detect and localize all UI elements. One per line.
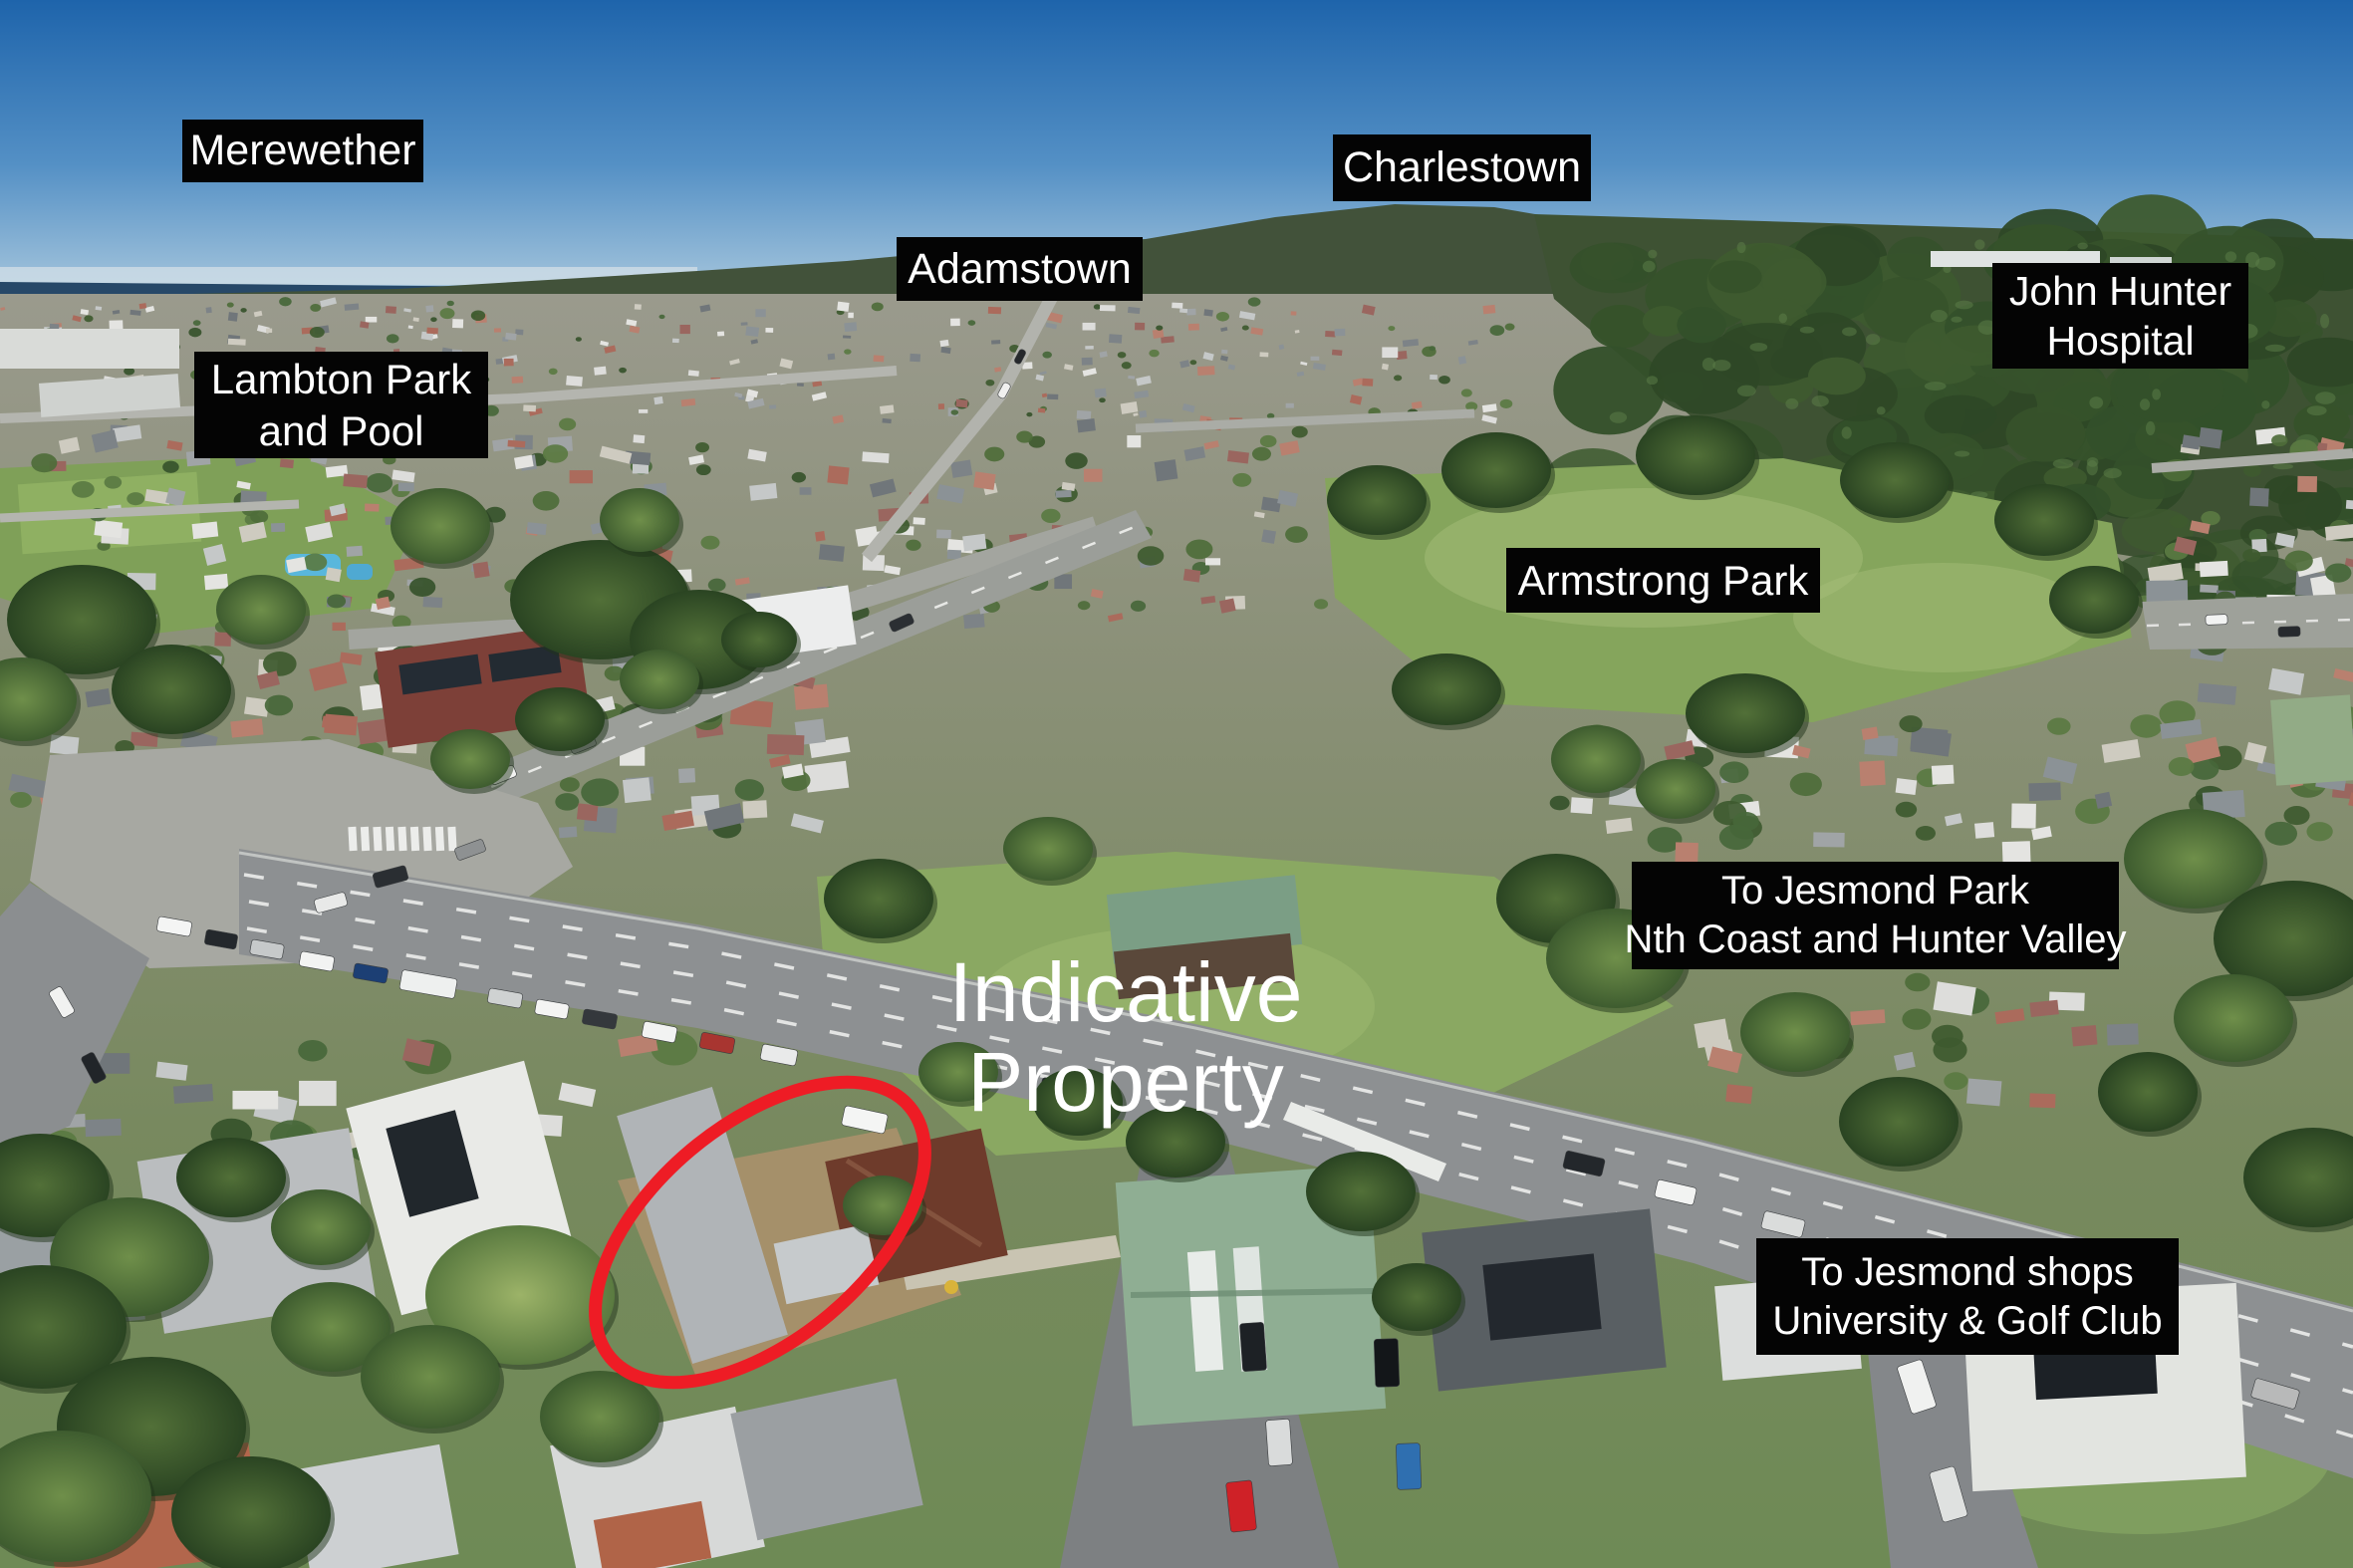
tree xyxy=(533,491,560,511)
roof xyxy=(2249,487,2269,506)
tree xyxy=(1041,509,1060,523)
roof xyxy=(1127,435,1141,447)
tree xyxy=(127,492,144,505)
roof xyxy=(828,354,836,361)
roof xyxy=(425,305,433,312)
tree xyxy=(216,575,306,645)
roof xyxy=(988,307,1001,314)
tree xyxy=(1122,362,1132,369)
roof xyxy=(1221,350,1227,355)
forest-tree xyxy=(1553,346,1665,434)
tree xyxy=(1441,432,1551,508)
roof xyxy=(228,312,238,322)
car xyxy=(1225,1480,1256,1532)
roof xyxy=(192,521,219,539)
canopy-highlight xyxy=(1866,334,1880,345)
roof xyxy=(266,329,272,333)
label-line: and Pool xyxy=(259,405,424,456)
zebra-bar xyxy=(397,827,406,851)
roof xyxy=(874,355,885,362)
tree xyxy=(1094,304,1101,309)
canopy-highlight xyxy=(2225,251,2237,262)
tree xyxy=(581,778,619,806)
roof xyxy=(913,517,924,525)
roof xyxy=(880,404,895,413)
roof xyxy=(741,322,748,326)
roof xyxy=(1128,307,1141,314)
tree xyxy=(1994,484,2094,556)
roof xyxy=(910,354,920,362)
location-label-adamstown: Adamstown xyxy=(897,237,1143,301)
roof xyxy=(882,418,891,423)
roof xyxy=(2182,434,2201,449)
tree xyxy=(1896,802,1917,818)
roof xyxy=(1082,358,1093,366)
tree xyxy=(555,793,579,811)
roof xyxy=(749,483,777,501)
roof xyxy=(345,304,360,311)
canopy-highlight xyxy=(1643,261,1656,273)
tree xyxy=(366,473,392,493)
forest-tree xyxy=(1677,307,1725,344)
roof xyxy=(1286,403,1294,408)
roof xyxy=(1850,1009,1885,1025)
tree xyxy=(447,301,454,306)
tree xyxy=(1902,1008,1931,1029)
tree xyxy=(1003,817,1093,881)
roof xyxy=(408,325,413,329)
tree xyxy=(227,303,234,308)
tree xyxy=(1216,312,1229,322)
tree xyxy=(792,472,806,483)
label-line: Charlestown xyxy=(1343,141,1581,193)
tree xyxy=(1149,350,1159,358)
roof xyxy=(326,567,342,582)
tree xyxy=(2098,1052,2198,1132)
roof xyxy=(271,523,285,532)
roof xyxy=(1571,797,1593,814)
tree xyxy=(1551,725,1641,793)
roof xyxy=(452,319,463,328)
roof xyxy=(1291,311,1297,315)
canopy-highlight xyxy=(1877,406,1886,414)
roof xyxy=(755,309,765,317)
roof xyxy=(1260,352,1269,357)
roof xyxy=(280,458,294,468)
canopy-highlight xyxy=(2104,468,2122,478)
roof xyxy=(1077,410,1092,419)
label-line: University & Golf Club xyxy=(1772,1297,2162,1346)
tree xyxy=(2049,566,2139,634)
roof xyxy=(1197,366,1215,376)
canopy-highlight xyxy=(1974,239,1984,249)
roof xyxy=(1458,356,1467,365)
canopy-highlight xyxy=(2140,398,2150,410)
tree xyxy=(162,461,179,473)
roof xyxy=(230,718,263,737)
tree xyxy=(105,476,123,489)
roof xyxy=(139,303,147,309)
roof xyxy=(2095,792,2112,809)
roof xyxy=(688,370,699,377)
roof xyxy=(1186,309,1195,316)
roof xyxy=(1155,459,1178,481)
canopy-highlight xyxy=(2315,392,2335,404)
canopy-highlight xyxy=(2089,396,2103,408)
roof xyxy=(507,440,525,448)
roof xyxy=(800,487,812,495)
label-line: John Hunter xyxy=(2009,266,2231,316)
tree xyxy=(700,536,719,550)
canopy-highlight xyxy=(2053,459,2074,469)
zebra-bar xyxy=(373,827,382,851)
roof xyxy=(973,471,995,489)
zebra-bar xyxy=(361,827,370,851)
canopy-highlight xyxy=(1779,313,1787,323)
tree xyxy=(1500,399,1513,408)
canopy-highlight xyxy=(1785,398,1798,409)
roof xyxy=(1362,379,1373,387)
tree xyxy=(559,418,576,431)
tree xyxy=(1099,397,1106,402)
tree xyxy=(430,317,436,322)
roof xyxy=(654,396,663,404)
tree xyxy=(387,334,399,343)
canopy-highlight xyxy=(1737,242,1746,253)
roof xyxy=(2071,1025,2097,1047)
canopy-highlight xyxy=(2273,463,2293,469)
tree xyxy=(2306,822,2332,841)
tree xyxy=(1306,1152,1416,1231)
tree xyxy=(1839,1077,1959,1167)
canopy-highlight xyxy=(1610,411,1627,422)
tree xyxy=(951,409,959,415)
roof xyxy=(1430,375,1438,380)
roof xyxy=(206,307,212,313)
roof xyxy=(1085,346,1093,350)
canopy-highlight xyxy=(1648,250,1657,259)
roof xyxy=(1896,778,1918,795)
roof xyxy=(742,800,767,818)
forest-tree xyxy=(1581,243,1634,281)
tree xyxy=(985,380,994,387)
tree xyxy=(1285,526,1308,543)
tree xyxy=(735,779,764,800)
roof xyxy=(635,304,642,310)
tree xyxy=(2170,515,2188,528)
roof xyxy=(862,451,889,463)
tree xyxy=(1429,346,1436,351)
roof xyxy=(1084,469,1103,482)
tree xyxy=(1636,759,1715,819)
forest-tree xyxy=(1590,305,1651,349)
roof xyxy=(639,409,648,413)
roof xyxy=(228,339,246,346)
tree xyxy=(619,368,627,374)
roof xyxy=(2198,683,2236,705)
tree xyxy=(600,488,679,552)
roof xyxy=(939,340,948,347)
tree xyxy=(1944,1072,1967,1090)
indicative-line2: Property xyxy=(921,1038,1330,1128)
green-roof-house xyxy=(2270,694,2353,785)
tree xyxy=(1138,546,1165,565)
tree xyxy=(906,540,920,551)
canopy-highlight xyxy=(2152,389,2161,399)
tree xyxy=(2124,809,2263,909)
canopy-highlight xyxy=(2077,242,2088,249)
location-label-armstrong-park: Armstrong Park xyxy=(1506,548,1820,613)
roof xyxy=(386,306,396,314)
label-line: Lambton Park xyxy=(211,354,471,404)
roof xyxy=(819,544,845,562)
tree xyxy=(1740,992,1850,1072)
tree xyxy=(1932,1025,1963,1048)
roof xyxy=(204,574,228,590)
tree xyxy=(549,369,558,375)
swimming-pool-small xyxy=(347,564,373,580)
tree xyxy=(1185,539,1212,559)
roof xyxy=(566,376,583,387)
tree xyxy=(1719,761,1748,783)
roof xyxy=(2011,803,2036,828)
roof xyxy=(109,320,123,329)
tree xyxy=(440,308,455,319)
roof xyxy=(494,328,501,332)
roof xyxy=(2297,476,2317,492)
roof xyxy=(1382,364,1389,371)
roof xyxy=(1325,331,1336,338)
canopy-highlight xyxy=(1842,327,1857,336)
roof xyxy=(1205,558,1220,565)
tree xyxy=(1016,431,1032,443)
roof xyxy=(570,470,593,483)
roof xyxy=(577,803,599,821)
roof xyxy=(1188,324,1199,331)
solar-panels xyxy=(1482,1253,1601,1340)
roof xyxy=(2107,1023,2139,1045)
roof xyxy=(797,383,804,387)
roof xyxy=(769,404,776,408)
roof xyxy=(2029,1093,2055,1108)
roof xyxy=(422,597,442,608)
tree xyxy=(250,510,268,523)
roof xyxy=(1382,347,1398,358)
car xyxy=(2206,615,2227,626)
tree xyxy=(1242,326,1249,331)
roof xyxy=(505,333,517,341)
tree xyxy=(2271,434,2287,446)
canopy-highlight xyxy=(1712,360,1730,371)
tree xyxy=(1719,825,1754,850)
roof xyxy=(815,531,826,542)
canopy-highlight xyxy=(2265,345,2285,352)
tree xyxy=(1905,973,1930,992)
indicative-property-title: Indicative Property xyxy=(921,948,1330,1128)
roof xyxy=(2200,585,2219,594)
roof xyxy=(1974,822,1994,839)
tree xyxy=(620,650,699,709)
roof xyxy=(1055,490,1071,498)
location-label-jesmond-park: To Jesmond Park Nth Coast and Hunter Val… xyxy=(1632,862,2119,969)
tree xyxy=(1327,465,1427,535)
tree xyxy=(72,481,95,498)
tree xyxy=(1292,426,1308,438)
roof xyxy=(366,317,377,323)
car xyxy=(1239,1322,1266,1372)
tree xyxy=(695,442,709,452)
roof xyxy=(426,328,438,335)
canopy-highlight xyxy=(1931,310,1948,322)
roof xyxy=(991,340,1000,344)
roof xyxy=(504,359,514,367)
tree xyxy=(1042,352,1051,359)
roof xyxy=(1083,323,1096,331)
tree xyxy=(2284,551,2312,572)
zebra-bar xyxy=(422,827,431,851)
tree xyxy=(2284,806,2310,825)
tree xyxy=(1505,324,1515,331)
location-label-merewether: Merewether xyxy=(182,120,423,182)
roof xyxy=(767,734,805,755)
roof xyxy=(2200,561,2228,577)
roof xyxy=(1203,309,1212,316)
tree xyxy=(471,310,485,321)
indicative-line1: Indicative xyxy=(921,948,1330,1038)
tree xyxy=(576,337,582,342)
roof xyxy=(962,534,986,552)
tree xyxy=(1636,415,1755,495)
tree xyxy=(1916,826,1936,841)
roof xyxy=(1933,981,1975,1015)
roof xyxy=(848,313,854,319)
roof xyxy=(594,367,607,376)
roof xyxy=(365,504,380,512)
roof xyxy=(1077,418,1096,432)
roof xyxy=(1095,389,1107,398)
zebra-bar xyxy=(386,827,394,851)
roof xyxy=(1139,410,1147,418)
label-line: To Jesmond shops xyxy=(1801,1248,2134,1297)
roof xyxy=(512,377,524,384)
location-label-lambton-park: Lambton Park and Pool xyxy=(194,352,488,458)
tree xyxy=(10,792,32,808)
tree xyxy=(1248,297,1261,306)
roof xyxy=(1725,1084,1752,1104)
car xyxy=(2278,627,2300,638)
tree xyxy=(1790,772,1822,796)
roof xyxy=(2346,500,2353,510)
zebra-bar xyxy=(447,827,456,851)
tree xyxy=(1190,360,1197,365)
tree xyxy=(303,554,327,572)
roof xyxy=(804,761,849,793)
roof xyxy=(678,768,695,783)
roof xyxy=(1335,329,1346,337)
location-label-john-hunter-hospital: John Hunter Hospital xyxy=(1992,263,2248,369)
roof xyxy=(324,714,358,736)
label-line: Merewether xyxy=(189,125,415,176)
tree xyxy=(708,579,726,592)
tree xyxy=(265,695,293,716)
car xyxy=(1374,1339,1400,1388)
tree xyxy=(543,444,568,463)
tree xyxy=(721,612,797,667)
roof xyxy=(1179,308,1187,313)
roof xyxy=(765,328,773,333)
canopy-highlight xyxy=(1956,301,1973,310)
tree xyxy=(696,464,711,475)
zebra-bar xyxy=(410,827,419,851)
roof xyxy=(1047,394,1058,400)
roof xyxy=(947,550,961,560)
tree xyxy=(193,320,201,326)
roof xyxy=(843,336,851,339)
roof xyxy=(1261,529,1276,544)
tree xyxy=(310,304,321,312)
tree xyxy=(1550,796,1570,811)
tree xyxy=(112,645,231,734)
canopy-highlight xyxy=(2146,421,2155,435)
roof xyxy=(717,332,724,337)
forest-tree xyxy=(2005,406,2085,462)
mown-grass xyxy=(1793,563,2092,672)
label-line: To Jesmond Park xyxy=(1721,867,2029,915)
roof xyxy=(1675,842,1698,862)
roof xyxy=(94,519,123,538)
roof xyxy=(837,302,849,312)
canopy-highlight xyxy=(1955,450,1969,456)
tree xyxy=(1252,447,1271,461)
canopy-highlight xyxy=(1800,327,1815,334)
roof xyxy=(950,460,972,478)
tree xyxy=(240,308,246,313)
tree xyxy=(1260,435,1277,447)
tree xyxy=(968,320,976,326)
roof xyxy=(1135,323,1145,331)
tree xyxy=(1461,389,1472,396)
tree xyxy=(1078,601,1091,610)
canopy-highlight xyxy=(2307,405,2327,415)
label-line: Hospital xyxy=(2046,316,2194,366)
roof xyxy=(2028,782,2061,801)
tree xyxy=(1232,473,1251,487)
tree xyxy=(824,859,933,938)
roof xyxy=(2029,1000,2058,1017)
tree xyxy=(2130,714,2162,737)
roof xyxy=(1311,357,1320,361)
roof xyxy=(347,546,363,557)
tree xyxy=(327,595,346,609)
tree xyxy=(263,652,297,676)
roof xyxy=(844,322,857,332)
roof xyxy=(1813,832,1845,847)
roof xyxy=(1109,334,1122,343)
canopy-highlight xyxy=(2261,400,2269,409)
canopy-highlight xyxy=(2320,314,2329,329)
tree xyxy=(1490,325,1505,336)
tree xyxy=(872,302,884,311)
canopy-highlight xyxy=(1812,395,1829,406)
car xyxy=(1265,1419,1292,1466)
tree xyxy=(1388,326,1395,331)
roof xyxy=(523,404,536,411)
tree xyxy=(279,297,292,306)
zebra-bar xyxy=(435,827,444,851)
tree xyxy=(843,1176,922,1235)
tree xyxy=(1372,1263,1461,1331)
tree xyxy=(1156,325,1163,330)
